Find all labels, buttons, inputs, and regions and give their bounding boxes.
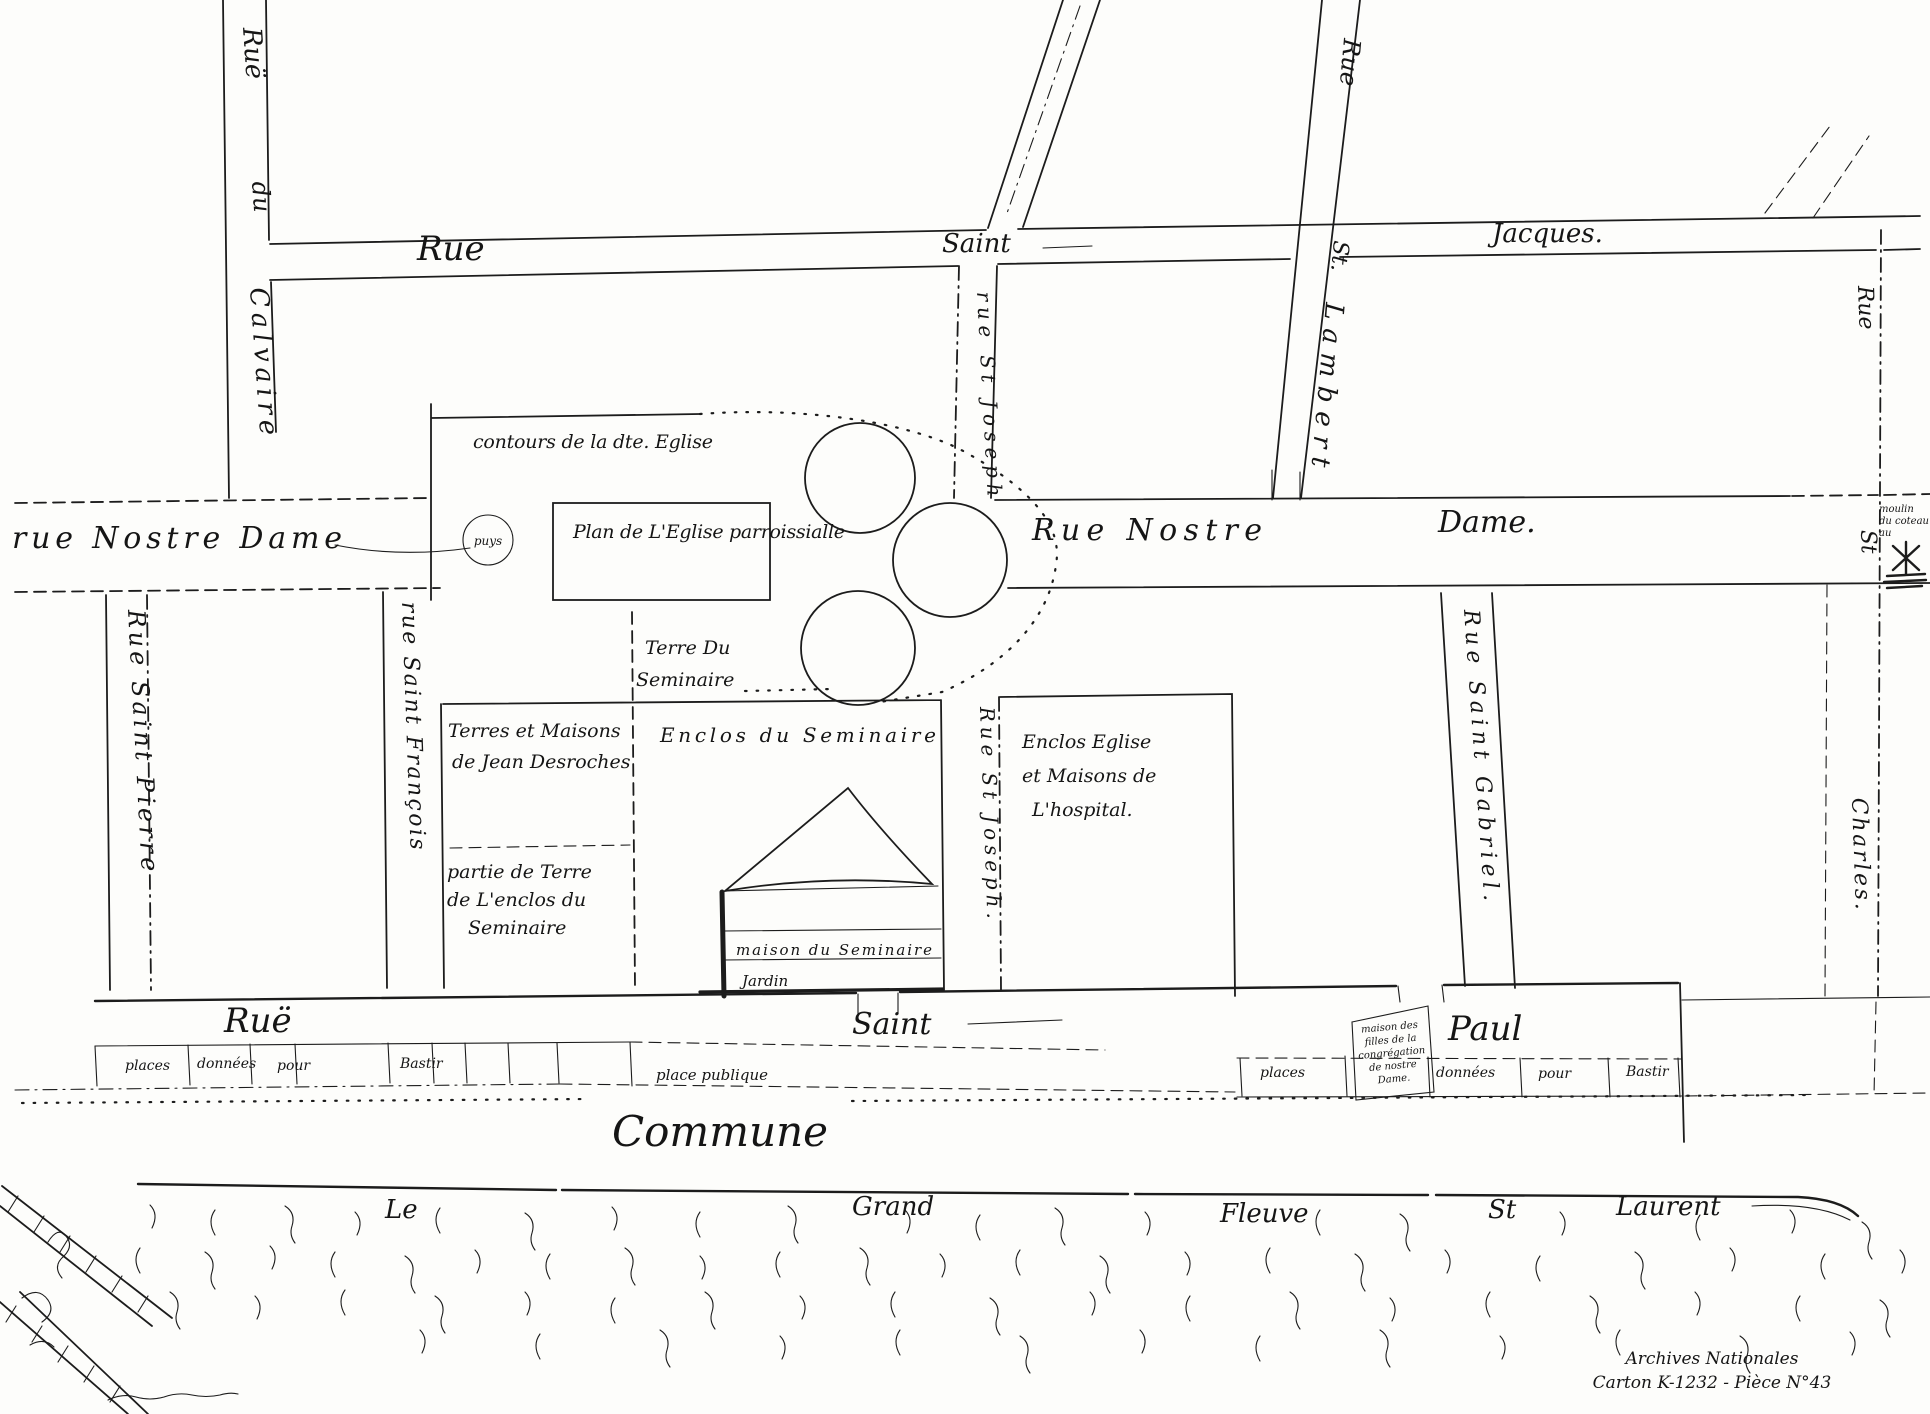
congregation-house-label: maison des filles de la congrégation de … bbox=[1356, 1019, 1428, 1088]
saint-jacques-dash bbox=[1043, 246, 1092, 248]
label-calvaire-du: du bbox=[246, 180, 276, 213]
label-st-charles-rue: Rue bbox=[1852, 284, 1879, 330]
label-rue-st-jacques-rue: Rue bbox=[416, 229, 485, 269]
label-rue-nostre-dame-east2: Dame. bbox=[1437, 505, 1536, 540]
label-rue-st-paul-rue: Ruë bbox=[223, 1001, 292, 1041]
label-st-lambert-rue: Rue bbox=[1334, 36, 1366, 87]
illegible-cursive-marks bbox=[22, 1232, 70, 1347]
label-st-lambert-st: St. bbox=[1325, 239, 1353, 272]
rue-nostre-dame-east-dashes bbox=[1792, 494, 1930, 496]
label-partie-3: Seminaire bbox=[468, 917, 566, 939]
rue-st-charles-line bbox=[1878, 230, 1881, 996]
label-plots-left-places: places bbox=[125, 1058, 170, 1074]
label-rue-st-pierre: Rue Saint Pierre bbox=[122, 608, 164, 872]
label-rue-st-francois: rue Saint François bbox=[396, 601, 430, 850]
diagonal-road-lines bbox=[988, 0, 1100, 228]
dame-flourish bbox=[335, 545, 470, 552]
label-rue-st-paul-name: Paul bbox=[1447, 1009, 1522, 1049]
label-commune: Commune bbox=[612, 1107, 828, 1156]
label-rue-st-joseph-lower: Rue St Joseph. bbox=[975, 705, 1006, 919]
partie-terre-divider bbox=[450, 845, 630, 848]
rue-st-francois-line bbox=[383, 592, 387, 988]
label-well-puys: puys bbox=[474, 534, 502, 548]
label-terre-seminaire-2: Seminaire bbox=[636, 669, 734, 691]
rue-st-joseph-upper-west-line bbox=[954, 266, 959, 498]
label-plots-right-donnees: données bbox=[1436, 1065, 1495, 1081]
southwest-road-a bbox=[0, 1186, 172, 1326]
label-rue-st-joseph-upper: rue St Joseph bbox=[972, 291, 1007, 497]
label-moulin-2: du coteau bbox=[1879, 516, 1929, 527]
label-rue-st-jacques-name: Jacques. bbox=[1487, 219, 1603, 249]
label-jardin: Jardin bbox=[739, 972, 788, 990]
windmill-icon bbox=[1884, 542, 1926, 588]
label-maison-seminaire: maison du Seminaire bbox=[736, 941, 932, 959]
plots-left-top-line bbox=[95, 1042, 630, 1046]
diagonal-road-centerline bbox=[1006, 6, 1080, 216]
map-canvas: Rue Saint Jacques. rue Nostre Dame puys … bbox=[0, 0, 1930, 1414]
rue-st-paul-top-line bbox=[95, 983, 1678, 1001]
label-place-publique: place publique bbox=[656, 1066, 768, 1084]
label-river-laurent: Laurent bbox=[1615, 1192, 1721, 1222]
label-plots-right-pour: pour bbox=[1538, 1066, 1572, 1082]
label-plots-right-bastir: Bastir bbox=[1625, 1064, 1670, 1080]
label-desroches-1: Terres et Maisons bbox=[448, 720, 621, 742]
label-hospital-2: et Maisons de bbox=[1022, 765, 1156, 787]
label-partie-1: partie de Terre bbox=[447, 861, 592, 883]
label-church-contours: contours de la dte. Eglise bbox=[473, 431, 713, 453]
rue-st-paul-top-line-east bbox=[1682, 997, 1930, 1000]
label-archives-1: Archives Nationales bbox=[1624, 1349, 1799, 1369]
label-plots-left-donnees: données bbox=[197, 1056, 256, 1072]
church-nave bbox=[553, 503, 770, 600]
label-river-grand: Grand bbox=[852, 1192, 934, 1222]
church-apse-lobe-east bbox=[893, 503, 1007, 617]
label-church-plan: Plan de L'Eglise parroissialle bbox=[572, 521, 845, 543]
label-plots-right-places: places bbox=[1260, 1065, 1305, 1081]
label-congregation-4: de nostre bbox=[1369, 1059, 1418, 1074]
seminary-divider-dashed bbox=[632, 612, 635, 988]
label-rue-st-gabriel: Rue Saint Gabriel. bbox=[1458, 608, 1503, 902]
southwest-road-a-hatches bbox=[8, 1196, 148, 1312]
laurent-flourish bbox=[1752, 1205, 1850, 1220]
label-enclos-seminaire: Enclos du Seminaire bbox=[659, 723, 936, 747]
saint-paul-dash bbox=[968, 1020, 1062, 1024]
seminary-house-left-wall bbox=[722, 892, 724, 996]
historical-map-scan: Rue Saint Jacques. rue Nostre Dame puys … bbox=[0, 0, 1930, 1414]
label-calvaire-rue: Ruë bbox=[236, 25, 270, 80]
label-calvaire-name: Calvaire bbox=[243, 286, 283, 436]
seminary-garden-triangle bbox=[725, 788, 932, 891]
corner-diagonal-dashes bbox=[1765, 122, 1869, 218]
label-st-lambert-name: Lambert bbox=[1305, 300, 1349, 469]
label-desroches-2: de Jean Desroches bbox=[452, 751, 631, 773]
label-river-st: St bbox=[1488, 1195, 1517, 1225]
label-rue-nostre-dame-east: Rue Nostre bbox=[1031, 513, 1262, 548]
church-apse-lobe-south bbox=[801, 591, 915, 705]
label-st-charles-name: Charles. bbox=[1846, 797, 1875, 910]
label-archives-2: Carton K-1232 - Pièce N°43 bbox=[1593, 1373, 1832, 1393]
rue-st-pierre-east-line bbox=[106, 595, 110, 990]
plots-left-ticks bbox=[95, 1042, 632, 1086]
plots-right-bottom-line bbox=[1237, 1096, 1682, 1097]
label-partie-2: de L'enclos du bbox=[447, 889, 586, 911]
label-moulin-1: moulin bbox=[1879, 504, 1914, 515]
label-rue-st-paul-saint: Saint bbox=[852, 1007, 932, 1042]
label-rue-nostre-dame-west: rue Nostre Dame bbox=[12, 521, 342, 556]
label-river-fleuve: Fleuve bbox=[1219, 1199, 1309, 1229]
label-st-charles-st: St bbox=[1855, 529, 1881, 554]
southwest-road-b-hatches bbox=[6, 1306, 120, 1402]
plots-right-end-wall bbox=[1680, 983, 1684, 1142]
church-apse-lobe-north bbox=[805, 423, 915, 533]
label-congregation-5: Dame. bbox=[1376, 1073, 1410, 1087]
label-terre-seminaire-1: Terre Du bbox=[645, 637, 730, 659]
plots-right-top-line bbox=[1237, 1058, 1682, 1059]
river-waves bbox=[136, 1205, 1905, 1373]
label-river-le: Le bbox=[384, 1195, 418, 1225]
rue-st-jacques-lines bbox=[270, 216, 1920, 280]
label-plots-left-bastir: Bastir bbox=[399, 1056, 444, 1072]
label-hospital-3: L'hospital. bbox=[1031, 799, 1133, 821]
label-rue-st-jacques-saint: Saint bbox=[942, 229, 1011, 259]
label-moulin-3: au bbox=[1879, 528, 1891, 539]
label-plots-left-pour: pour bbox=[277, 1058, 311, 1074]
label-hospital-1: Enclos Eglise bbox=[1021, 731, 1151, 753]
rue-st-joseph-lower-line bbox=[999, 697, 1001, 990]
